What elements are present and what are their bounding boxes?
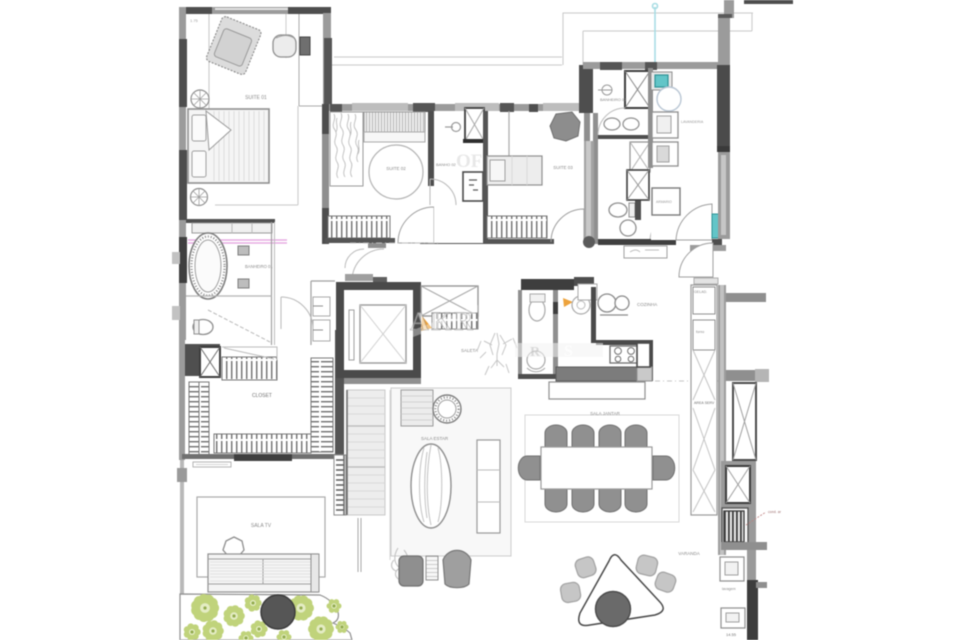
svg-text:LAVANDERIA: LAVANDERIA: [681, 120, 704, 124]
svg-text:SUITE 03: SUITE 03: [553, 165, 573, 170]
svg-text:VARANDA: VARANDA: [678, 551, 699, 556]
svg-text:SALETA: SALETA: [461, 348, 478, 353]
svg-text:CLOSET: CLOSET: [252, 393, 272, 399]
svg-text:BANHO 02: BANHO 02: [436, 162, 457, 167]
svg-text:1.75: 1.75: [190, 18, 199, 23]
svg-text:lavagem: lavagem: [722, 587, 736, 591]
svg-text:cond. ar: cond. ar: [768, 510, 782, 514]
svg-text:SALA ESTAR: SALA ESTAR: [421, 436, 449, 441]
svg-text:SALA JANTAR: SALA JANTAR: [590, 411, 620, 416]
svg-text:SUITE 02: SUITE 02: [386, 166, 406, 171]
svg-text:COZINHA: COZINHA: [637, 302, 657, 307]
svg-text:ARMARIO: ARMARIO: [656, 200, 672, 204]
svg-text:AKR: AKR: [410, 307, 475, 336]
svg-text:forno: forno: [696, 330, 704, 334]
svg-text:R: R: [530, 345, 541, 360]
svg-text:S: S: [564, 343, 573, 360]
svg-text:GELAD.: GELAD.: [694, 290, 707, 294]
svg-text:BANHEIRO 02: BANHEIRO 02: [600, 97, 627, 102]
svg-text:SALA TV: SALA TV: [251, 523, 272, 529]
svg-text:14.55: 14.55: [726, 632, 737, 637]
svg-text:OF: OF: [456, 151, 482, 172]
svg-text:SUITE 01: SUITE 01: [245, 95, 267, 101]
svg-text:BANHEIRO 01: BANHEIRO 01: [245, 264, 273, 269]
svg-text:AREA SERV: AREA SERV: [694, 401, 715, 405]
